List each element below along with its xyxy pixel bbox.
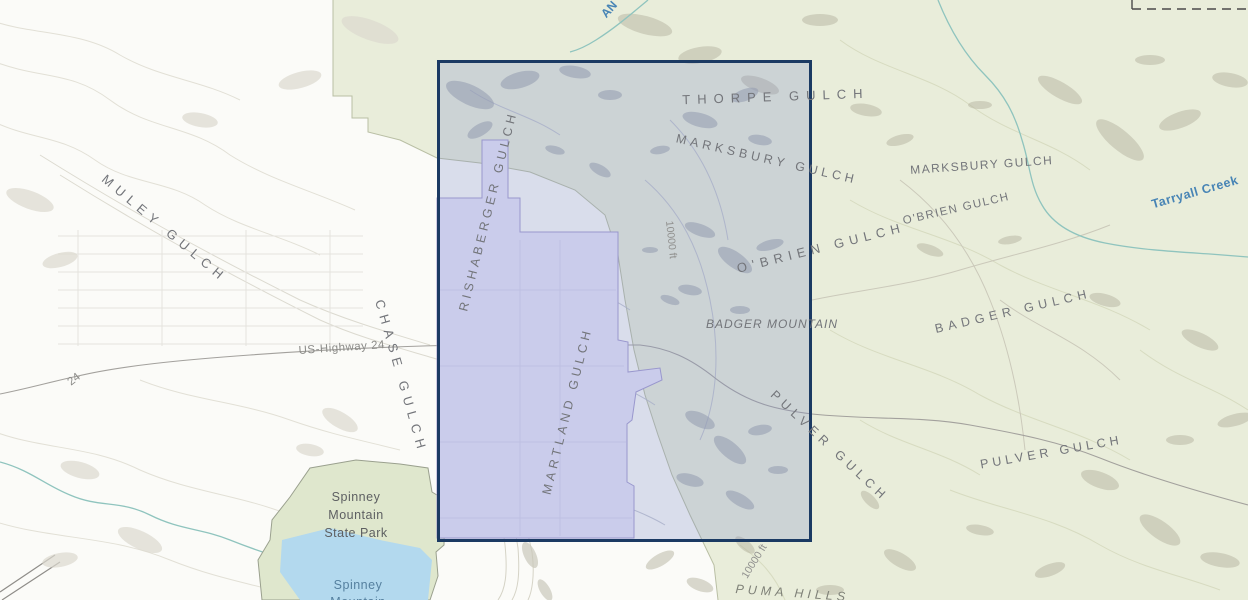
- hillshade-blob: [816, 585, 844, 595]
- selection-rectangle[interactable]: [437, 60, 812, 542]
- hillshade-blob: [59, 457, 102, 483]
- hillshade-blob: [181, 110, 219, 130]
- hillshade-blob: [3, 183, 56, 217]
- map-canvas[interactable]: MULEY GULCHCHASE GULCHRISHABERGER GULCHM…: [0, 0, 1248, 600]
- hillshade-blob: [295, 442, 325, 459]
- hillshade-blob: [41, 550, 79, 570]
- hillshade-blob: [114, 522, 165, 559]
- hillshade-blob: [1166, 435, 1194, 445]
- parcel-grid-left: [58, 230, 363, 346]
- hillshade-blob: [643, 547, 677, 573]
- hillshade-blob: [41, 249, 79, 272]
- hillshade-blob: [535, 577, 556, 600]
- hillshade-blob: [319, 403, 362, 437]
- hillshade-blob: [685, 575, 715, 596]
- hillshade-blob: [277, 67, 324, 94]
- hillshade-blob: [968, 101, 992, 109]
- hillshade-blob: [802, 14, 838, 26]
- hillshade-blob: [1135, 55, 1165, 65]
